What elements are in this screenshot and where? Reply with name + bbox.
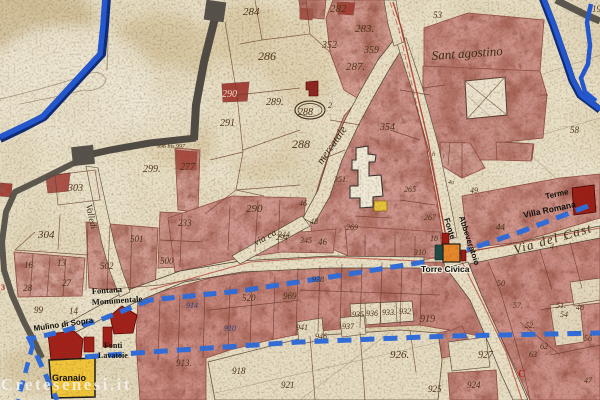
svg-text:Cretesenesi.it: Cretesenesi.it: [1, 375, 132, 394]
